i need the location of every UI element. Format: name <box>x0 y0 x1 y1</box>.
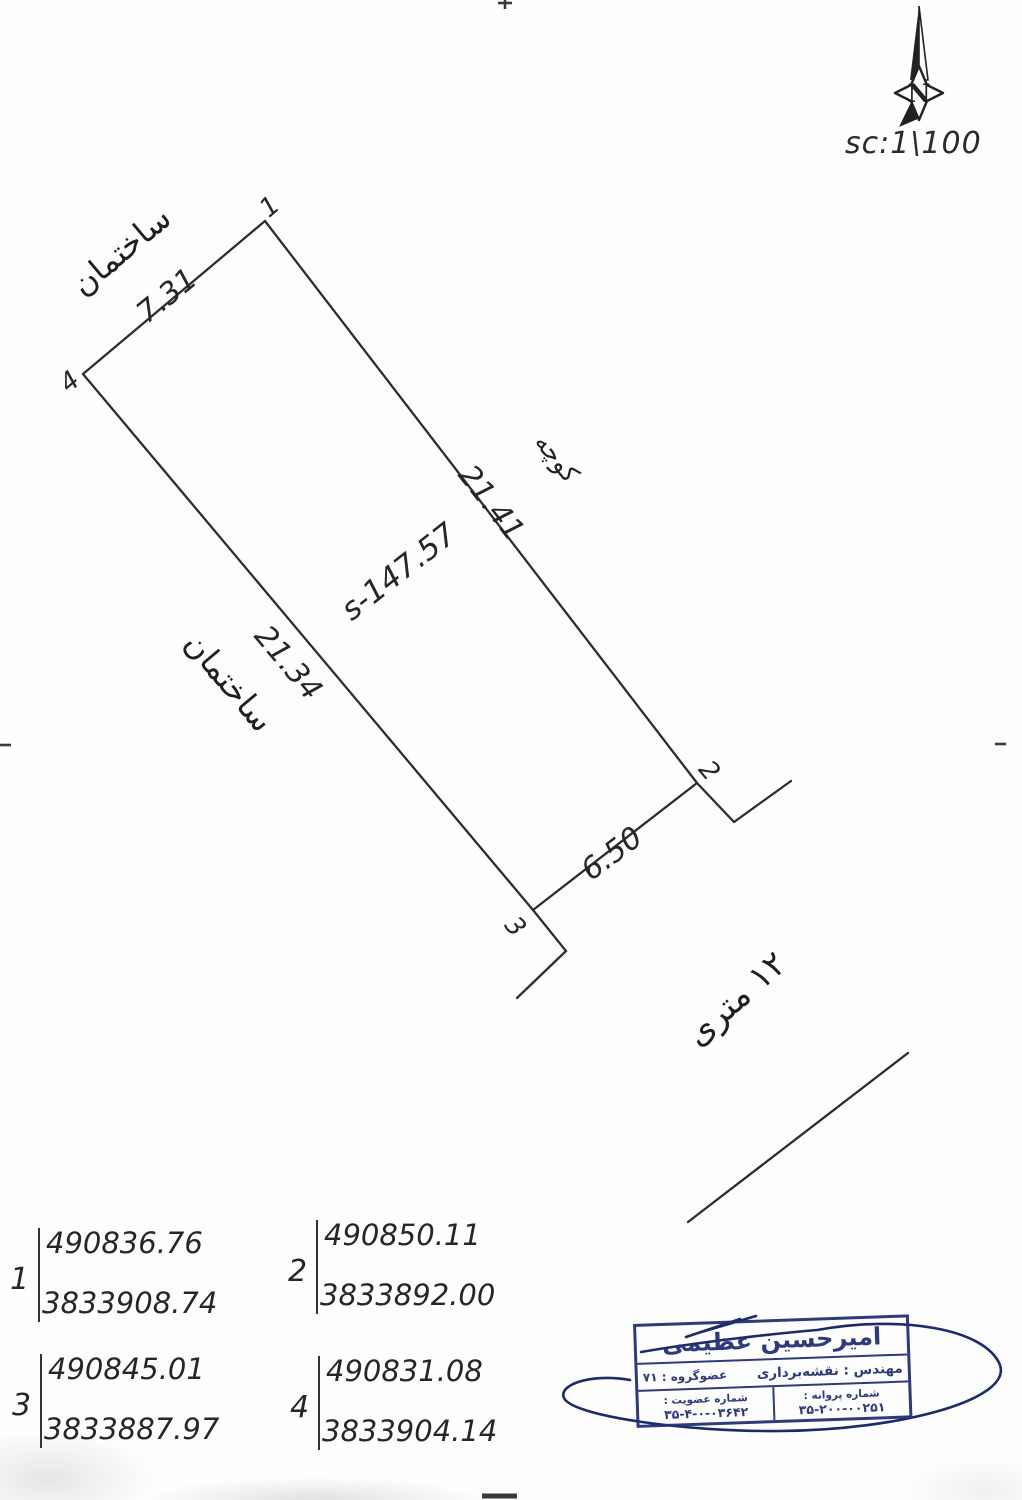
coordinate-point-3: 3 490845.01 3833887.97 <box>12 1352 272 1462</box>
edge-3-4 <box>83 374 533 910</box>
point-easting: 490850.11 <box>324 1218 481 1252</box>
coordinate-brace <box>316 1220 318 1314</box>
point-easting: 490845.01 <box>48 1352 205 1386</box>
point-easting: 490831.08 <box>326 1354 483 1388</box>
coordinate-brace <box>318 1356 320 1450</box>
north-arrow-icon: N <box>895 6 943 127</box>
point-number: 4 <box>290 1390 309 1425</box>
scale-label: sc:1\100 <box>845 126 982 161</box>
survey-map-page: N sc:1\100 7.31 21.41 21.34 6.50 s-147.5… <box>0 0 1022 1500</box>
coordinate-point-2: 2 490850.11 3833892.00 <box>288 1218 548 1328</box>
street-line <box>688 1053 908 1222</box>
stamp-profession: مهندس : نقشه‌برداری <box>757 1360 903 1381</box>
point-number: 3 <box>12 1388 31 1423</box>
coordinate-brace <box>40 1354 42 1448</box>
point-northing: 3833908.74 <box>42 1286 217 1320</box>
stamp-license-number: ۳۵-۲۰۰-۰۰۲۵۱ <box>799 1400 886 1417</box>
point-number: 2 <box>288 1254 307 1289</box>
engineer-stamp: امیرحسین عظیمی مهندس : نقشه‌برداری عضوگر… <box>633 1314 912 1428</box>
stamp-membership-number: ۳۵-۴-۰-۰۳۶۴۲ <box>664 1405 749 1422</box>
point-northing: 3833887.97 <box>44 1412 219 1446</box>
point-easting: 490836.76 <box>46 1226 203 1260</box>
parcel-boundary <box>83 221 908 1222</box>
coordinate-brace <box>38 1228 40 1322</box>
coordinate-point-1: 1 490836.76 3833908.74 <box>10 1226 270 1336</box>
stamp-group-number: عضوگروه : ۷۱ <box>643 1367 728 1384</box>
point-number: 1 <box>10 1262 29 1297</box>
stamp-membership-cell: شماره عضویت : ۳۵-۴-۰-۰۳۶۴۲ <box>638 1387 773 1425</box>
stamp-license-cell: شماره پروانه : ۳۵-۲۰۰-۰۰۲۵۱ <box>772 1382 909 1420</box>
north-letter: N <box>908 79 931 108</box>
jog-corner-2 <box>697 781 791 822</box>
point-northing: 3833904.14 <box>322 1414 497 1448</box>
point-northing: 3833892.00 <box>320 1278 495 1312</box>
coordinate-point-4: 4 490831.08 3833904.14 <box>290 1354 550 1464</box>
